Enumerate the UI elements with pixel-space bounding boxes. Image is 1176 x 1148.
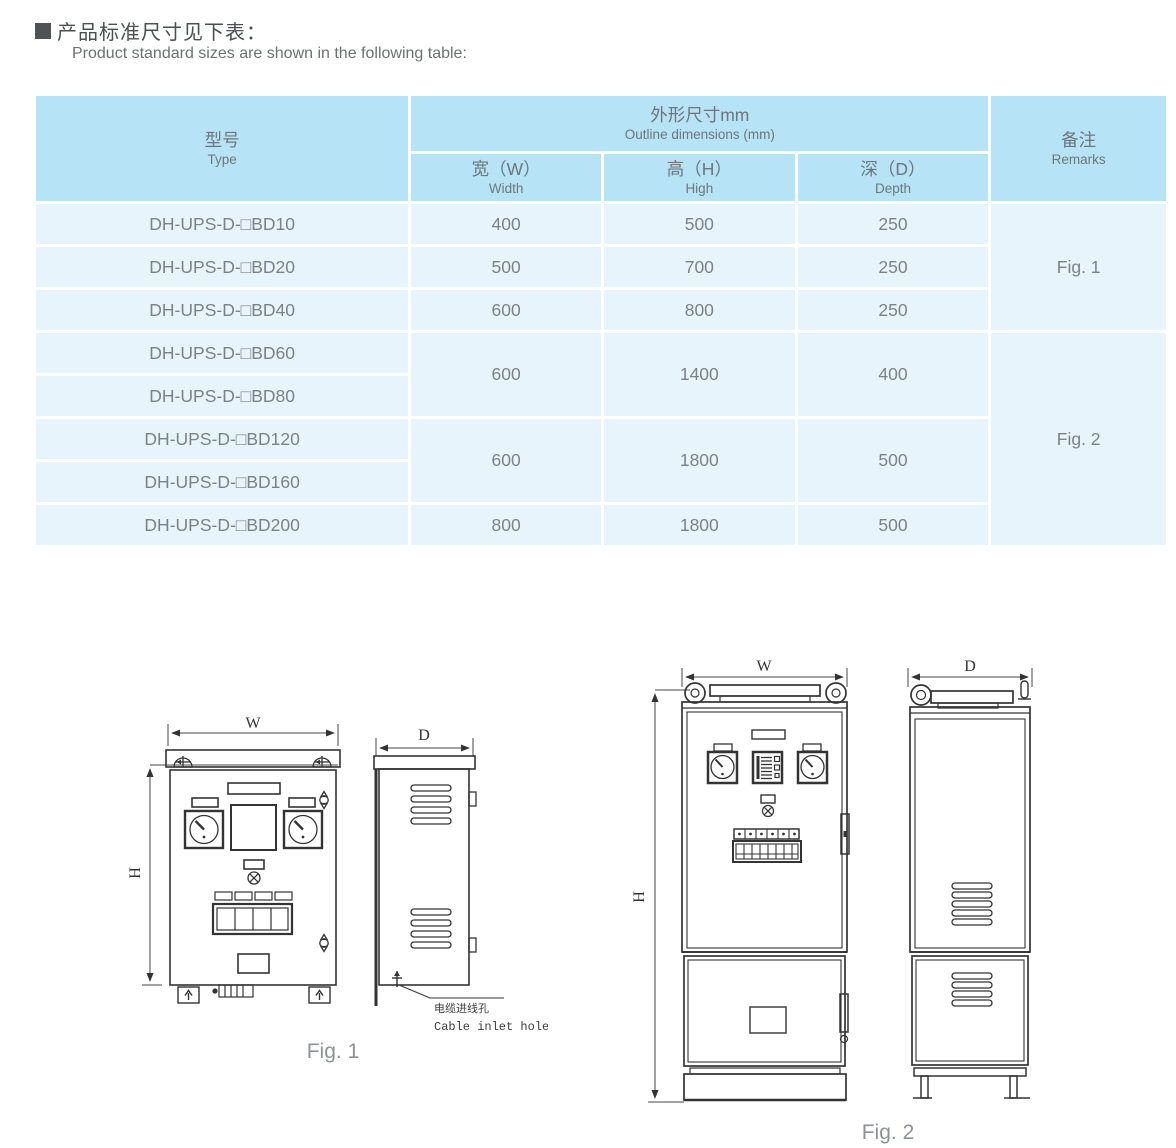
fig2-side-louvers-upper (952, 883, 992, 925)
fig1-dim-w-label: W (245, 715, 261, 732)
fig1-foot-left (178, 987, 199, 1003)
header-depth-cn: 深（D） (798, 158, 989, 180)
cell-w: 600 (410, 332, 603, 418)
table-header-row: 型号 Type 外形尺寸mm Outline dimensions (mm) 备… (35, 95, 1168, 153)
cell-remark-fig1: Fig. 1 (990, 203, 1168, 332)
header-high-en: High (604, 180, 795, 197)
fig1-cable-label-en: Cable inlet hole (434, 1020, 548, 1034)
header-type-cn: 型号 (36, 129, 408, 151)
fig1-dim-d-label: D (418, 727, 430, 744)
fig1-label-slot (228, 783, 280, 794)
fig2-gauge-right (798, 752, 827, 783)
cell-type: DH-UPS-D-□BD120 (35, 418, 410, 461)
table-row: DH-UPS-D-□BD60 600 1400 400 Fig. 2 (35, 332, 1168, 375)
section-bullet-icon (35, 23, 51, 39)
fig2-indicator-lamp (763, 806, 774, 817)
fig1-drawing: W H D (128, 688, 548, 1078)
cell-h: 1800 (602, 504, 796, 547)
fig2-label-slot (752, 730, 785, 739)
cell-type: DH-UPS-D-□BD160 (35, 461, 410, 504)
header-width: 宽（W） Width (410, 153, 603, 203)
fig2-lifting-eye-left (685, 683, 705, 703)
fig2-top-plate (710, 685, 820, 696)
header-type: 型号 Type (35, 95, 410, 203)
cell-type: DH-UPS-D-□BD40 (35, 289, 410, 332)
header-remarks-en: Remarks (991, 151, 1166, 168)
cell-h: 500 (602, 203, 796, 246)
cell-d: 500 (796, 418, 990, 504)
cell-h: 1800 (602, 418, 796, 504)
header-outline-en: Outline dimensions (mm) (411, 126, 988, 143)
cell-type: DH-UPS-D-□BD60 (35, 332, 410, 375)
fig2-drawing: W H D (630, 655, 1060, 1148)
section-title: 产品标准尺寸见下表： (35, 16, 267, 45)
cell-h: 800 (602, 289, 796, 332)
fig2-side-base-feet (913, 1068, 1030, 1098)
fig1-terminal-block (213, 892, 292, 934)
cell-d: 250 (796, 246, 990, 289)
fig2-dim-w-label: W (756, 658, 772, 675)
section-title-cn: 产品标准尺寸见下表： (57, 16, 267, 45)
fig2-dimensions (648, 668, 1032, 1102)
fig2-base-plinth (684, 1068, 846, 1100)
header-width-cn: 宽（W） (411, 158, 601, 180)
fig1-gauge-left (185, 811, 223, 848)
header-type-en: Type (36, 151, 408, 168)
fig1-indicator-label (244, 860, 264, 869)
fig2-side-lifting-eye (911, 685, 931, 705)
fig1-cable-leader-line (399, 985, 504, 998)
cell-h: 700 (602, 246, 796, 289)
fig2-side-lower-section (912, 956, 1028, 1065)
fig1-hinge-top (469, 792, 476, 806)
fig1-bottom-connector (212, 985, 253, 997)
fig2-dim-h-label: H (631, 891, 648, 903)
cell-w: 800 (410, 504, 603, 547)
fig1-foot-right (309, 987, 330, 1003)
fig1-cable-label-cn: 电缆进线孔 (434, 1001, 489, 1015)
fig1-door-lock-top (320, 792, 328, 809)
fig1-louvers-top (411, 785, 451, 824)
cell-w: 600 (410, 289, 603, 332)
size-table: 型号 Type 外形尺寸mm Outline dimensions (mm) 备… (33, 93, 1169, 548)
cell-d: 400 (796, 332, 990, 418)
fig1-caption: Fig. 1 (307, 1040, 360, 1063)
fig2-lifting-eye-right (826, 683, 846, 703)
cell-type: DH-UPS-D-□BD20 (35, 246, 410, 289)
cell-type: DH-UPS-D-□BD10 (35, 203, 410, 246)
cell-w: 500 (410, 246, 603, 289)
fig2-gauge-left (708, 752, 737, 783)
fig1-louvers-bottom (411, 909, 451, 948)
section-title-en: Product standard sizes are shown in the … (72, 45, 467, 63)
fig1-hinge-bottom (469, 938, 476, 952)
header-remarks-cn: 备注 (991, 129, 1166, 151)
fig1-bottom-label (238, 954, 269, 973)
fig2-side-louvers-lower (952, 973, 992, 1006)
header-high: 高（H） High (602, 153, 796, 203)
fig2-dim-d-label: D (964, 658, 976, 675)
table-row: DH-UPS-D-□BD10 400 500 250 Fig. 1 (35, 203, 1168, 246)
cell-d: 250 (796, 289, 990, 332)
cell-type: DH-UPS-D-□BD200 (35, 504, 410, 547)
cell-h: 1400 (602, 332, 796, 418)
cell-d: 250 (796, 203, 990, 246)
fig2-terminal-strip-top (734, 829, 799, 839)
fig2-lower-door (684, 956, 848, 1066)
header-high-cn: 高（H） (604, 158, 795, 180)
fig2-side-eyebolt (1018, 681, 1031, 699)
fig2-indicator-label (761, 795, 775, 803)
header-outline: 外形尺寸mm Outline dimensions (mm) (410, 95, 990, 153)
cell-remark-fig2: Fig. 2 (990, 332, 1168, 547)
fig2-front-view (682, 683, 849, 1100)
header-width-en: Width (411, 180, 601, 197)
fig2-controller-unit (753, 752, 782, 783)
fig1-side-view (374, 756, 504, 1006)
cell-d: 500 (796, 504, 990, 547)
fig2-lower-door-window (750, 1007, 786, 1033)
fig2-caption: Fig. 2 (862, 1121, 915, 1144)
cell-w: 600 (410, 418, 603, 504)
fig1-gauge-right (284, 811, 322, 848)
fig1-display-window (231, 805, 276, 850)
fig1-front-view (166, 750, 340, 1003)
fig1-dim-h-label: H (128, 867, 144, 879)
fig2-terminal-strip-bottom (733, 841, 801, 862)
catalog-page: 产品标准尺寸见下表： Product standard sizes are sh… (0, 0, 1176, 1148)
fig1-indicator-lamp (248, 872, 260, 884)
fig2-side-view (910, 681, 1031, 1098)
header-depth: 深（D） Depth (796, 153, 990, 203)
cell-w: 400 (410, 203, 603, 246)
cell-type: DH-UPS-D-□BD80 (35, 375, 410, 418)
header-outline-cn: 外形尺寸mm (411, 104, 988, 126)
fig1-door-lock-bottom (320, 935, 328, 952)
header-remarks: 备注 Remarks (990, 95, 1168, 203)
header-depth-en: Depth (798, 180, 989, 197)
